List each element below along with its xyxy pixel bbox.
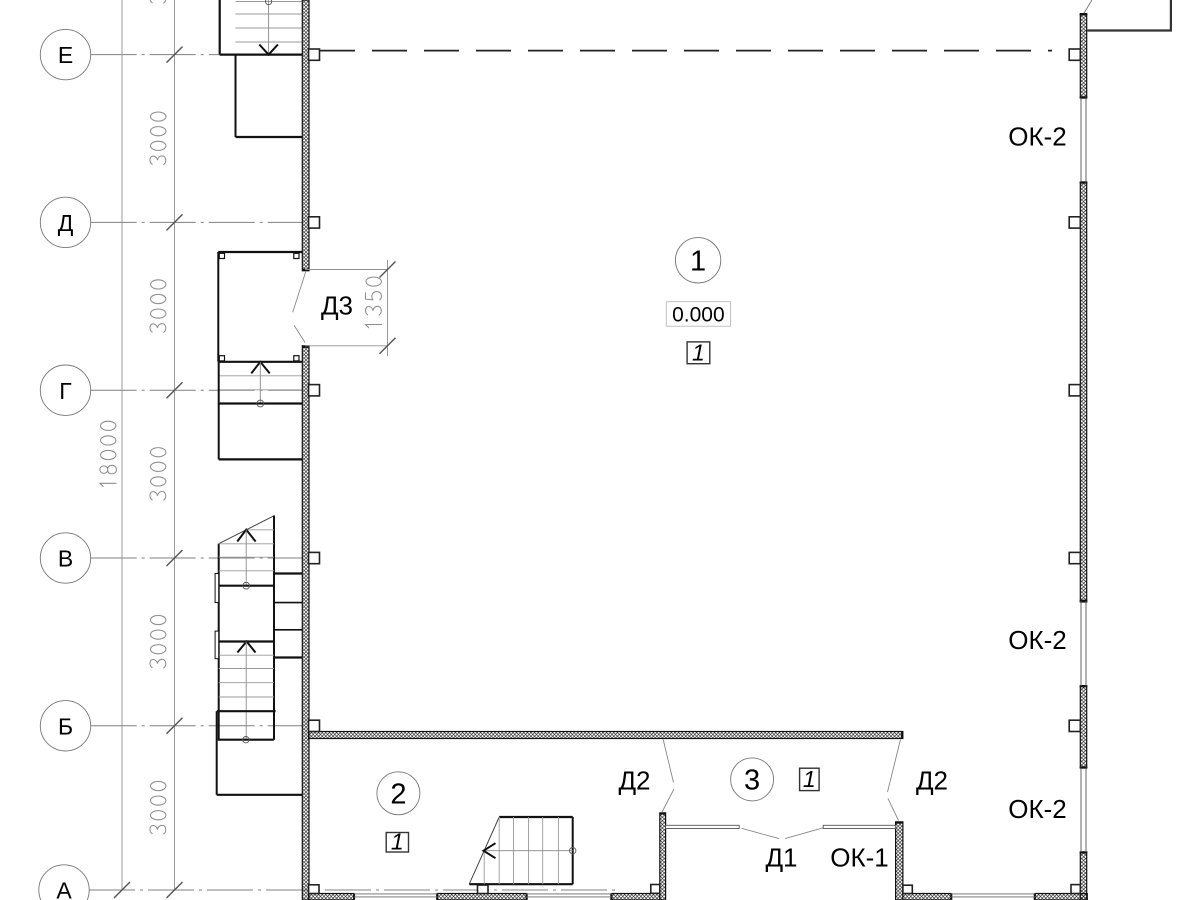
svg-text:ОК-1: ОК-1 bbox=[830, 843, 889, 873]
svg-text:Д2: Д2 bbox=[618, 766, 650, 796]
svg-text:А: А bbox=[56, 878, 72, 900]
svg-text:1: 1 bbox=[692, 340, 705, 366]
svg-text:1: 1 bbox=[391, 829, 404, 855]
svg-text:1: 1 bbox=[803, 766, 816, 792]
svg-text:ОК-2: ОК-2 bbox=[1008, 122, 1067, 152]
svg-text:Г: Г bbox=[59, 378, 72, 404]
svg-text:Д3: Д3 bbox=[321, 291, 353, 321]
svg-text:Д1: Д1 bbox=[765, 843, 797, 873]
svg-text:ОК-2: ОК-2 bbox=[1008, 794, 1067, 824]
svg-text:0.000: 0.000 bbox=[672, 304, 725, 327]
svg-text:Е: Е bbox=[58, 42, 73, 68]
svg-text:2: 2 bbox=[390, 778, 406, 810]
svg-text:Д2: Д2 bbox=[916, 766, 948, 796]
svg-text:ОК-2: ОК-2 bbox=[1008, 625, 1067, 655]
svg-text:1: 1 bbox=[690, 245, 706, 277]
svg-text:Б: Б bbox=[58, 713, 73, 739]
svg-text:3: 3 bbox=[744, 764, 760, 796]
svg-text:В: В bbox=[58, 546, 73, 572]
svg-text:Д: Д bbox=[58, 210, 74, 236]
